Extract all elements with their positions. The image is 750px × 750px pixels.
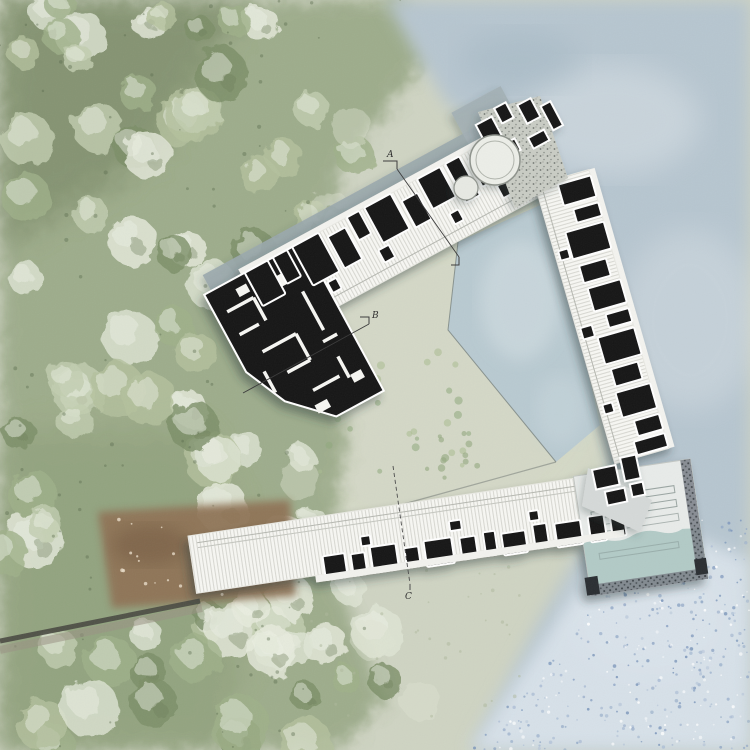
plan-viewport: A B C bbox=[0, 0, 750, 750]
paper-grain-overlay bbox=[0, 0, 750, 750]
site-plan-canvas: A B C bbox=[0, 0, 750, 750]
